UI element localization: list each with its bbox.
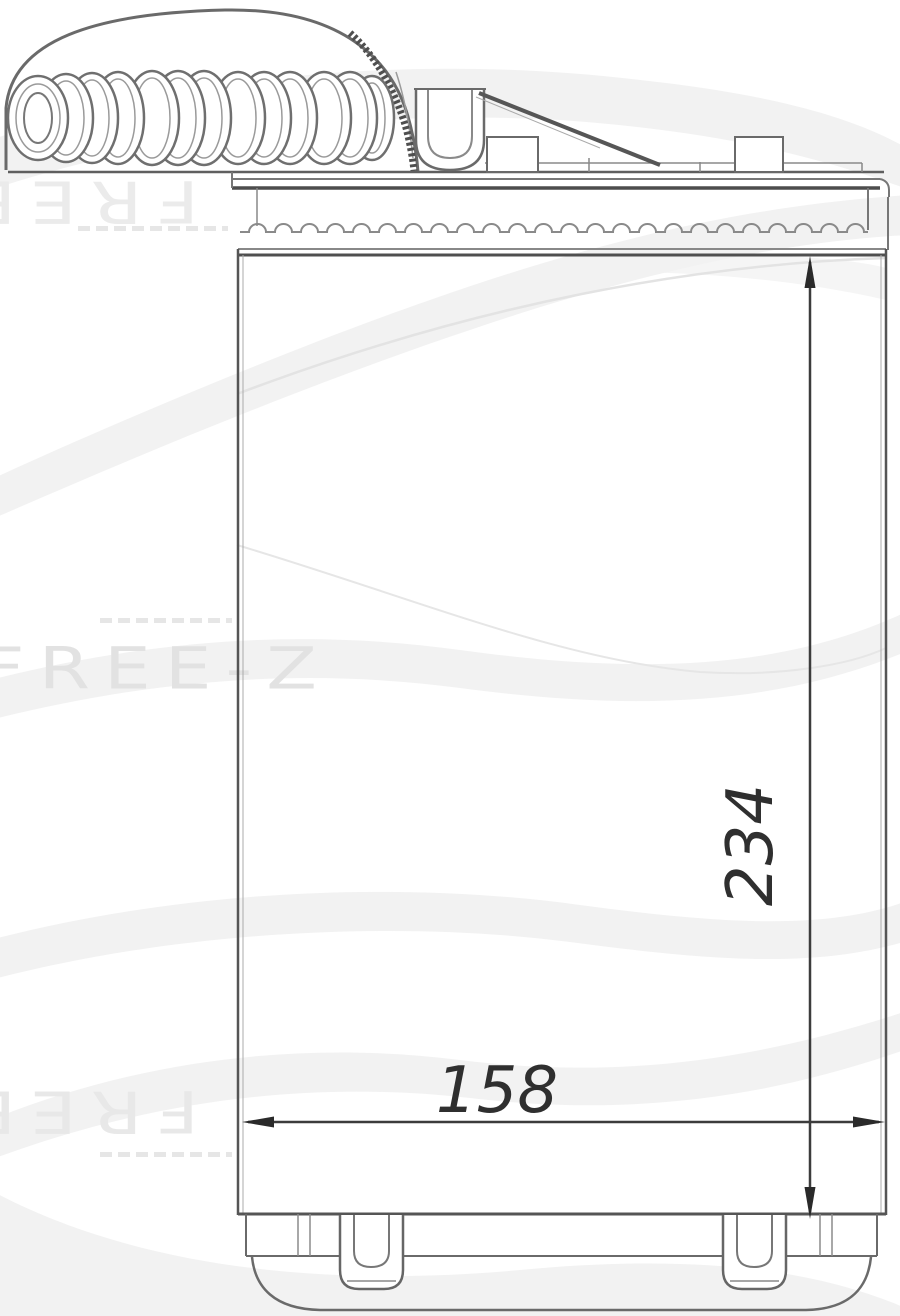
bracket-block-right	[735, 137, 783, 172]
top-fittings	[414, 89, 783, 172]
dimension-height-label: 234	[714, 784, 788, 906]
dimension-width: 158	[242, 1054, 885, 1128]
clip-left	[340, 1215, 403, 1289]
bracket-block-left	[487, 137, 538, 172]
dimension-width-label: 158	[436, 1054, 558, 1128]
arrow-right-icon	[853, 1117, 885, 1128]
core-body-outline	[238, 249, 886, 1215]
pipe-end-ring	[8, 76, 68, 160]
inlet-bellows-group	[8, 71, 394, 165]
part-drawing: 234 158	[0, 0, 900, 1316]
bottom-mounting	[246, 1214, 877, 1310]
dimension-height: 234	[714, 256, 816, 1219]
clip-right	[723, 1215, 786, 1289]
fin-strip	[240, 224, 868, 232]
technical-drawing-canvas: FREE-Z FREE-Z FREE-Z	[0, 0, 900, 1316]
top-plate-end-cap	[880, 179, 889, 197]
arrow-up-icon	[805, 256, 816, 288]
arrow-left-icon	[242, 1117, 274, 1128]
